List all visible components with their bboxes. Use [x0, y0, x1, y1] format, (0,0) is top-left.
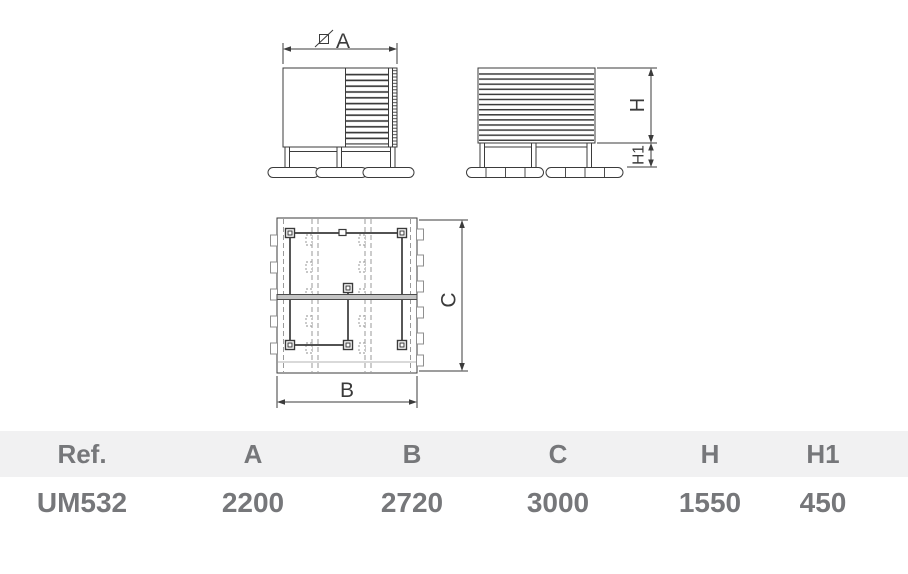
- side-view: [467, 68, 658, 178]
- col-header-a: A: [164, 431, 342, 477]
- front-legs: [285, 147, 395, 168]
- side-cabinet-body: [478, 68, 595, 147]
- col-header-c: C: [482, 431, 634, 477]
- louver-grille-side: [479, 70, 594, 141]
- front-cabinet-body: [283, 68, 397, 152]
- dimension-H: [597, 68, 657, 167]
- table-row: UM532 2200 2720 3000 1550 450: [0, 477, 908, 529]
- table-header-row: Ref. A B C H H1: [0, 431, 908, 477]
- technical-drawing: A: [0, 0, 908, 431]
- drawing-canvas: A: [0, 0, 908, 431]
- front-skid-base: [268, 168, 414, 178]
- cell-h: 1550: [634, 477, 786, 529]
- side-height-label: H: [627, 98, 649, 112]
- plan-top-clip: [339, 230, 346, 236]
- plan-cross-bar: [277, 295, 417, 300]
- louver-grille: [346, 71, 388, 145]
- square-section-symbol: [315, 30, 333, 47]
- dimensions-table: Ref. A B C H H1 UM532 2200 2720 3000 155…: [0, 431, 908, 529]
- cell-h1: 450: [786, 477, 908, 529]
- col-header-h1: H1: [786, 431, 908, 477]
- col-header-ref: Ref.: [0, 431, 164, 477]
- col-header-b: B: [342, 431, 482, 477]
- plan-depth-label: C: [438, 292, 461, 307]
- cell-a: 2200: [164, 477, 342, 529]
- cell-c: 3000: [482, 477, 634, 529]
- side-skid-base: [467, 168, 624, 178]
- cell-ref: UM532: [0, 477, 164, 529]
- front-width-label: A: [336, 30, 350, 53]
- col-header-h: H: [634, 431, 786, 477]
- side-base-height-label: H1: [631, 145, 648, 165]
- cell-b: 2720: [342, 477, 482, 529]
- plan-width-label: B: [340, 379, 354, 402]
- plan-view: [271, 218, 469, 408]
- product-dimension-sheet: A: [0, 0, 908, 574]
